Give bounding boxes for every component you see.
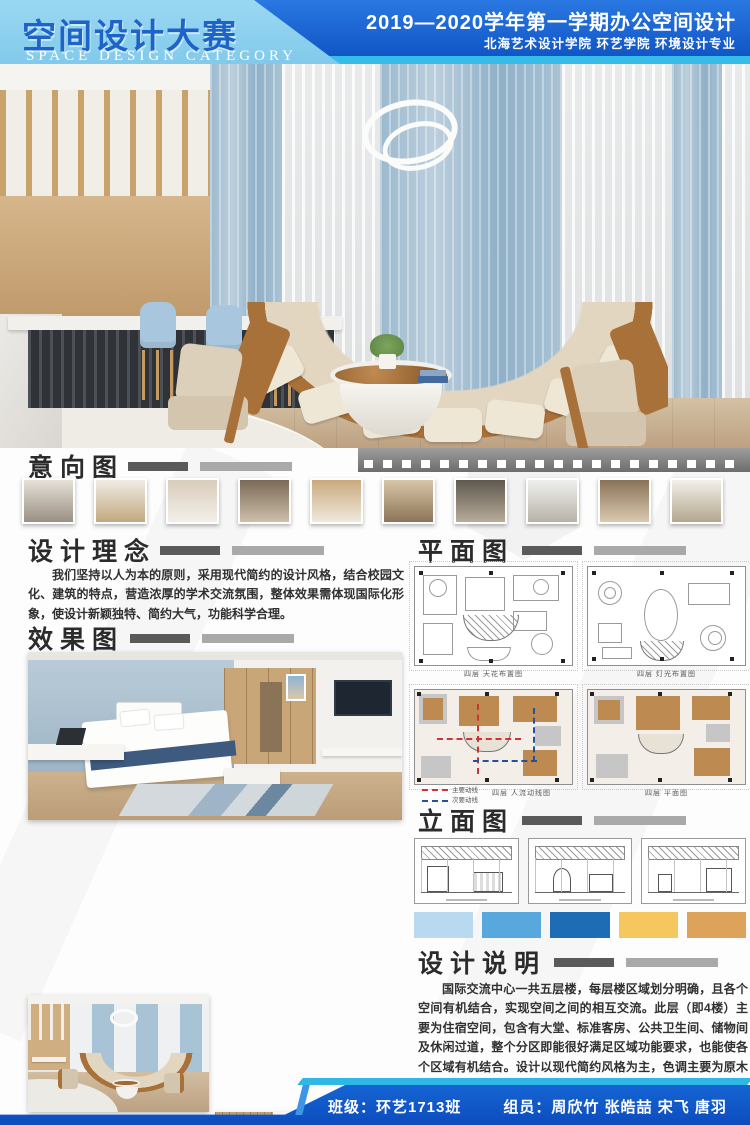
legend-row: 主要动线 xyxy=(418,786,478,796)
title-bar-dark xyxy=(522,816,582,825)
intent-thumbnail-image xyxy=(24,480,73,522)
floor-plan-furniture[interactable]: 四层 平面图 xyxy=(587,689,746,798)
plant-pot xyxy=(379,354,396,369)
table-books xyxy=(420,370,446,376)
intent-thumbnail[interactable] xyxy=(166,478,219,524)
color-swatch[interactable] xyxy=(687,912,746,938)
intent-thumbnail-image xyxy=(312,480,361,522)
wardrobe-open-section xyxy=(260,682,282,752)
lounge-ceiling xyxy=(28,995,209,1004)
elevation-row xyxy=(414,838,746,904)
class-label: 班级：环艺1713班 xyxy=(328,1096,461,1117)
plan-caption: 四层 天花布置图 xyxy=(464,669,523,679)
intent-thumbnail-image xyxy=(600,480,649,522)
intent-thumbnail[interactable] xyxy=(238,478,291,524)
intent-thumbnail-image xyxy=(96,480,145,522)
title-bar-light xyxy=(200,462,292,471)
title-bar-light xyxy=(626,958,718,967)
color-swatch[interactable] xyxy=(550,912,609,938)
title-bar-light xyxy=(202,634,294,643)
bedroom-tv xyxy=(334,680,392,716)
intent-thumbnails xyxy=(22,478,728,524)
section-title-elevation: 立面图 xyxy=(418,802,514,838)
title-bar-dark xyxy=(554,958,614,967)
plan-drawing xyxy=(587,689,746,785)
title-bar-light xyxy=(594,546,686,555)
section-title-plan: 平面图 xyxy=(418,532,514,568)
intent-thumbnail[interactable] xyxy=(526,478,579,524)
intent-thumbnail[interactable] xyxy=(454,478,507,524)
filmstrip-decoration xyxy=(358,448,750,472)
course-subtitle: 北海艺术设计学院 环艺学院 环境设计专业 xyxy=(484,33,736,52)
sofa-cushion xyxy=(484,399,546,440)
armchair xyxy=(548,362,648,448)
elevation-drawing[interactable] xyxy=(414,838,519,904)
round-coffee-table xyxy=(330,360,452,436)
bedroom-desk xyxy=(28,744,124,760)
color-swatch[interactable] xyxy=(619,912,678,938)
elevation-drawing[interactable] xyxy=(528,838,633,904)
bed-pillow xyxy=(153,713,184,731)
effect-image-bedroom[interactable] xyxy=(28,652,402,820)
title-bar-light xyxy=(594,816,686,825)
hero-render-lounge xyxy=(0,64,750,448)
intent-thumbnail[interactable] xyxy=(598,478,651,524)
title-bar-dark xyxy=(522,546,582,555)
elevation-drawing[interactable] xyxy=(641,838,746,904)
bedroom-art-frame xyxy=(286,674,306,701)
section-title-effect: 效果图 xyxy=(28,620,124,656)
intent-thumbnail[interactable] xyxy=(22,478,75,524)
intent-thumbnail[interactable] xyxy=(94,478,147,524)
color-swatch[interactable] xyxy=(482,912,541,938)
lounge-slats xyxy=(28,1004,70,1040)
legend-label: 主要动线 xyxy=(452,787,478,794)
intent-thumbnail-image xyxy=(528,480,577,522)
members-label: 组员：周欣竹 张皓喆 宋飞 唐羽 xyxy=(503,1096,727,1117)
floor-plan-circulation[interactable]: 四层 人流动线图 xyxy=(414,689,573,798)
course-title: 2019—2020学年第一学期办公空间设计 xyxy=(366,6,736,35)
footer: 班级：环艺1713班 组员：周欣竹 张皓喆 宋飞 唐羽 xyxy=(0,1078,750,1125)
material-palette xyxy=(414,912,746,938)
title-bar-light xyxy=(232,546,324,555)
intent-thumbnail-image xyxy=(240,480,289,522)
concept-paragraph: 我们坚持以人为本的原则，采用现代简约的设计风格，结合校园文化、建筑的特点，营造浓… xyxy=(28,566,404,624)
geometric-rug xyxy=(119,784,333,816)
hero-curtain-sheer xyxy=(722,64,750,400)
footer-text: 班级：环艺1713班 组员：周欣竹 张皓喆 宋飞 唐羽 xyxy=(328,1096,727,1117)
tv-console xyxy=(322,748,402,756)
title-bar-dark xyxy=(160,546,220,555)
intent-thumbnail-image xyxy=(456,480,505,522)
title-bar-dark xyxy=(128,462,188,471)
section-title-concept: 设计理念 xyxy=(28,532,156,568)
color-swatch[interactable] xyxy=(414,912,473,938)
lounge-chandelier xyxy=(110,1009,138,1027)
plan-caption: 四层 平面图 xyxy=(645,788,688,798)
plan-caption: 四层 人流动线图 xyxy=(492,788,551,798)
desk-laptop xyxy=(56,728,86,745)
plan-caption: 四层 灯光布置图 xyxy=(637,669,696,679)
lounge-bar xyxy=(32,1057,66,1062)
bed-pillow xyxy=(119,708,151,727)
intent-thumbnail[interactable] xyxy=(310,478,363,524)
section-title-description: 设计说明 xyxy=(418,944,546,980)
armchair xyxy=(168,346,268,448)
intent-thumbnail-image xyxy=(384,480,433,522)
floor-plan-grid: 四层 天花布置图 四层 灯光布置图 xyxy=(414,566,746,798)
plan-drawing xyxy=(587,566,746,666)
intent-thumbnail-image xyxy=(672,480,721,522)
title-bar-dark xyxy=(130,634,190,643)
legend-line xyxy=(422,789,448,791)
table-books xyxy=(418,376,448,383)
intent-thumbnail[interactable] xyxy=(670,478,723,524)
hero-curtain-blue xyxy=(672,64,722,402)
design-poster: 2019—2020学年第一学期办公空间设计 北海艺术设计学院 环艺学院 环境设计… xyxy=(0,0,750,1125)
plan-drawing xyxy=(414,689,573,785)
floor-plan-ceiling[interactable]: 四层 天花布置图 xyxy=(414,566,573,679)
plan-drawing xyxy=(414,566,573,666)
table-bowl-base xyxy=(340,384,442,436)
floor-plan-lighting[interactable]: 四层 灯光布置图 xyxy=(587,566,746,679)
intent-thumbnail-image xyxy=(168,480,217,522)
poster-title-en: SPACE DESIGN CATEGORY xyxy=(26,48,297,65)
intent-thumbnail[interactable] xyxy=(382,478,435,524)
footer-cyan-strip xyxy=(297,1078,750,1085)
